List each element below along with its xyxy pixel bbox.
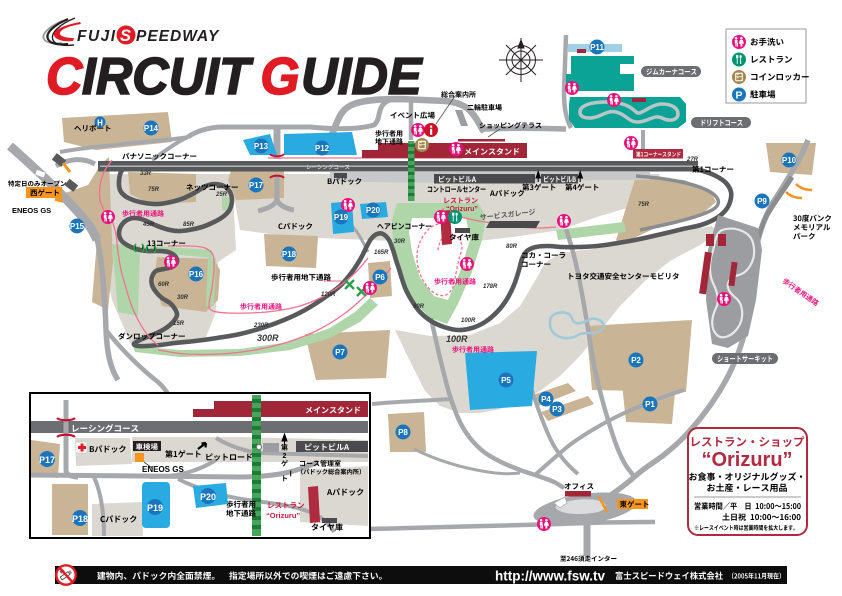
svg-text:H: H <box>97 119 103 128</box>
svg-text:2: 2 <box>283 453 287 460</box>
svg-text:60R: 60R <box>158 282 170 288</box>
svg-text:http://www.fsw.tv: http://www.fsw.tv <box>495 569 605 584</box>
svg-text:“Orizuru”: “Orizuru” <box>446 206 478 213</box>
svg-text:ENEOS GS: ENEOS GS <box>12 206 51 215</box>
svg-text:P3: P3 <box>552 405 562 414</box>
svg-text:P4: P4 <box>541 395 551 404</box>
svg-text:P14: P14 <box>144 124 159 133</box>
svg-text:P7: P7 <box>335 348 345 357</box>
svg-text:P16: P16 <box>189 270 204 279</box>
svg-text:P12: P12 <box>315 144 330 153</box>
svg-text:90R: 90R <box>413 304 425 310</box>
svg-text:120R: 120R <box>321 292 336 298</box>
svg-text:165R: 165R <box>374 250 389 256</box>
svg-text:230R: 230R <box>253 323 269 329</box>
svg-text:33R: 33R <box>140 171 152 177</box>
svg-text:15R: 15R <box>173 321 185 327</box>
svg-text:80R: 80R <box>506 244 518 250</box>
svg-text:300R: 300R <box>257 333 279 343</box>
svg-text:IRCUIT: IRCUIT <box>82 47 254 105</box>
svg-text:“Orizuru”: “Orizuru” <box>701 449 792 471</box>
svg-text:P1: P1 <box>645 400 655 409</box>
svg-text:P17: P17 <box>39 455 55 465</box>
svg-text:75R: 75R <box>148 187 160 193</box>
svg-text:P9: P9 <box>757 197 767 206</box>
svg-text:G: G <box>260 47 299 105</box>
svg-text:S: S <box>120 27 131 45</box>
svg-text:100R: 100R <box>461 318 476 324</box>
svg-text:178R: 178R <box>483 284 498 290</box>
svg-text:100R: 100R <box>446 334 468 344</box>
svg-text:C: C <box>46 47 83 105</box>
svg-text:30R: 30R <box>177 295 189 301</box>
svg-text:P15: P15 <box>70 222 85 231</box>
svg-text:P18: P18 <box>282 250 297 259</box>
svg-text:P5: P5 <box>501 376 511 385</box>
svg-text:45R: 45R <box>142 222 155 228</box>
svg-text:P13: P13 <box>254 142 269 151</box>
svg-text:P8: P8 <box>398 428 408 437</box>
svg-text:ENEOS GS: ENEOS GS <box>142 465 184 474</box>
svg-text:“Orizuru”: “Orizuru” <box>266 511 300 520</box>
svg-text:85R: 85R <box>183 222 195 228</box>
svg-text:P18: P18 <box>72 514 88 524</box>
svg-text:P19: P19 <box>334 213 349 222</box>
svg-text:P10: P10 <box>782 156 797 165</box>
svg-text:P20: P20 <box>366 206 381 215</box>
svg-text:30R: 30R <box>394 239 406 245</box>
svg-text:25R: 25R <box>215 192 228 198</box>
svg-text:P20: P20 <box>200 492 216 502</box>
svg-text:27R: 27R <box>686 157 699 163</box>
svg-text:FUJI: FUJI <box>77 28 117 45</box>
svg-text:P17: P17 <box>249 181 264 190</box>
svg-text:P6: P6 <box>375 273 385 282</box>
svg-text:UIDE: UIDE <box>301 47 423 105</box>
svg-text:PEEDWAY: PEEDWAY <box>136 28 220 45</box>
svg-text:P2: P2 <box>631 356 641 365</box>
svg-text:P19: P19 <box>147 503 163 513</box>
svg-text:75R: 75R <box>638 202 650 208</box>
svg-text:P11: P11 <box>590 43 604 52</box>
